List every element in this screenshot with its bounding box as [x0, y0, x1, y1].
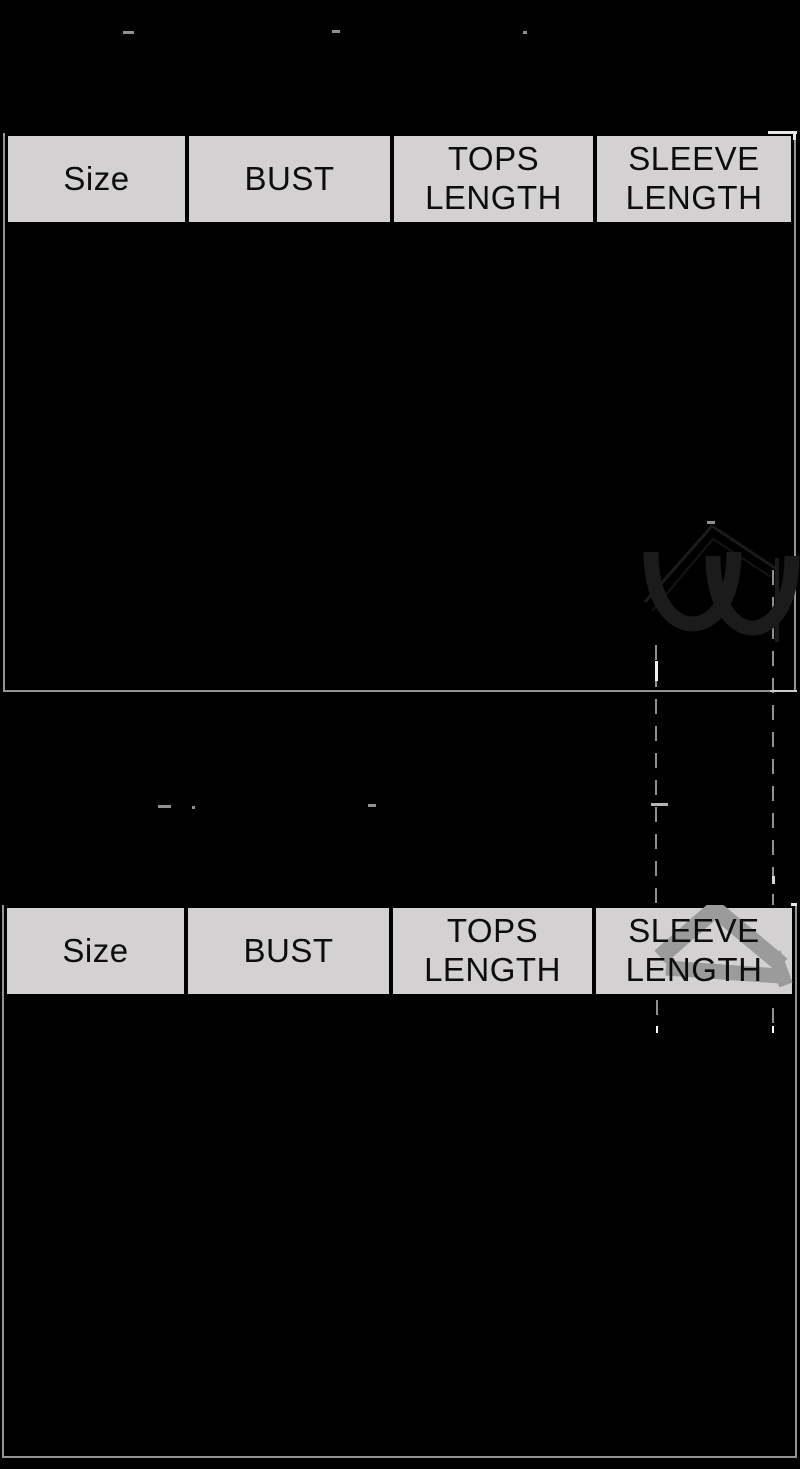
border-highlight-mark	[770, 690, 797, 692]
header-label-bust: BUST	[244, 160, 334, 199]
corner-notch-mark	[793, 131, 796, 140]
header-label-tops-length: TOPS LENGTH	[424, 912, 561, 989]
highlight-dash-mark	[655, 661, 658, 681]
watermark-glyph-icon	[630, 505, 800, 655]
size-chart-table-2: Size BUST TOPS LENGTH SLEEVE LENGTH	[2, 905, 797, 1458]
tick-mark	[651, 803, 668, 806]
header-cell-size: Size	[5, 136, 185, 222]
header-label-bust: BUST	[243, 932, 333, 971]
header-cell-bust: BUST	[185, 136, 390, 222]
page-root: { "tables": { "table1": { "headers": ["S…	[0, 0, 800, 1469]
table-1-header-row: Size BUST TOPS LENGTH SLEEVE LENGTH	[5, 133, 794, 226]
header-cell-sleeve-length: SLEEVE LENGTH	[593, 136, 794, 222]
header-cell-tops-length: TOPS LENGTH	[390, 136, 593, 222]
header-cell-sleeve-length: SLEEVE LENGTH	[592, 908, 795, 994]
header-cell-bust: BUST	[184, 908, 389, 994]
mid-dash-mark	[368, 804, 376, 807]
header-label-tops-length: TOPS LENGTH	[425, 140, 562, 217]
mid-dash-mark	[192, 806, 195, 809]
table-2-header-row: Size BUST TOPS LENGTH SLEEVE LENGTH	[4, 905, 795, 998]
header-cell-size: Size	[4, 908, 184, 994]
top-dash-mark	[332, 30, 340, 33]
table-2-body	[4, 995, 795, 1456]
header-cell-tops-length: TOPS LENGTH	[389, 908, 592, 994]
measure-dash-line-left-upper	[655, 645, 657, 905]
header-label-size: Size	[63, 160, 129, 199]
highlight-dash-mark	[772, 876, 775, 884]
top-dash-mark	[523, 31, 527, 34]
header-label-size: Size	[62, 932, 128, 971]
corner-notch-mark	[791, 903, 797, 906]
header-label-sleeve-length: SLEEVE LENGTH	[626, 912, 763, 989]
header-label-sleeve-length: SLEEVE LENGTH	[626, 140, 763, 217]
mid-dash-mark	[158, 805, 171, 808]
top-dash-mark	[123, 31, 134, 34]
